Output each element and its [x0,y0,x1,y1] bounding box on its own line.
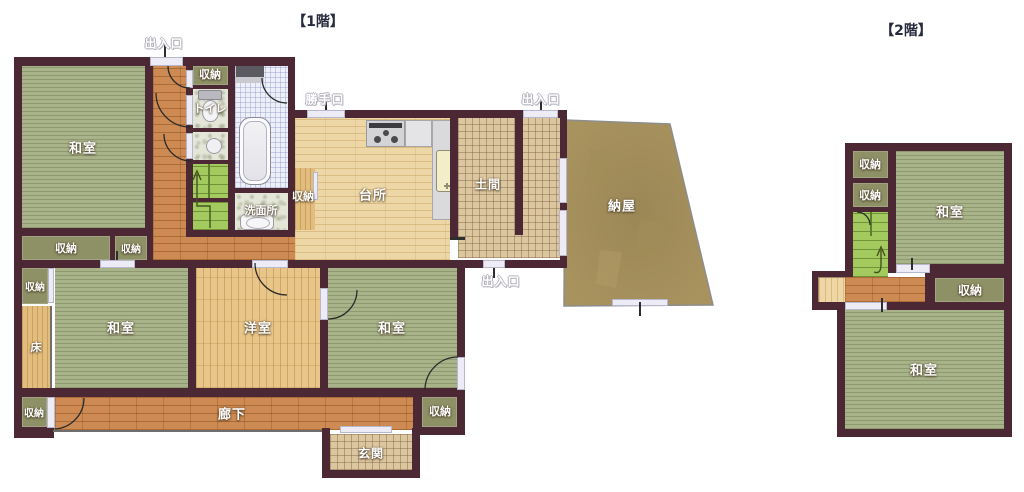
label-closet-west: 収納 [25,279,45,294]
label-kitchen: 台所 [359,185,387,204]
label-closet-southwest: 収納 [24,405,44,420]
entrance-door-top [150,57,183,66]
floorplan-canvas: 【1階】 【2階】 [0,0,1024,492]
stairs-divider-2f [870,212,872,236]
label-katteguchi: 勝手口 [305,91,344,108]
toilet-door [186,95,193,125]
genkan-door [340,426,392,433]
washitsu-south-west-door [320,288,328,320]
label-closet-wide: 収納 [55,240,77,256]
doma-door-top [523,110,558,118]
washbasin-door [186,133,193,159]
label-toilet: トイレ [194,100,227,116]
kitchen-sink-icon [405,120,432,147]
bathtub-icon [239,117,271,185]
label-closet-kitchen: 収納 [292,188,314,204]
toilet-tank-icon [198,90,222,100]
doma-door-bottom [483,260,505,268]
hallway-vertical [153,66,186,237]
label-deiriguchi-doma-bottom: 出入口 [481,273,520,290]
kitchen-backdoor [307,110,345,118]
label-corridor: 廊下 [218,404,246,423]
youshitsu-door [252,260,288,268]
label-washitsu-2f-north: 和室 [936,202,964,221]
hall-closet-door [186,70,193,88]
label-closet-top: 収納 [199,66,221,82]
washitsu-middle-door [100,260,135,268]
label-deiriguchi-doma-top: 出入口 [521,91,560,108]
bath-vanity-icon [236,66,264,77]
second-floor-title: 【2階】 [880,20,932,40]
label-washitsu-2f-south: 和室 [910,360,938,379]
closet-2f-tan [818,277,847,304]
washbasin-round-icon [206,138,222,154]
label-closet-2f-a: 収納 [859,156,881,172]
hallway-horizontal [153,237,295,260]
bath-vanity-shelf-icon [236,77,264,83]
label-genkan: 玄関 [358,445,384,462]
label-barn: 納屋 [608,196,636,215]
label-closet-2f-b: 収納 [859,187,881,203]
room-doma [458,118,560,258]
corridor-west-door [47,397,55,428]
label-tokonoma: 床 [31,339,42,355]
corridor-2f [845,277,925,302]
label-deiriguchi-top: 出入口 [144,35,183,52]
barn-opening-lower [559,210,567,256]
stairs-divider-1f [208,164,210,198]
washitsu-2f-north-door [896,264,930,273]
label-washitsu-nw: 和室 [69,138,97,157]
closet-west-door [48,268,54,303]
label-washitsu-middle: 和室 [107,318,135,337]
barn-opening-upper [559,158,567,203]
stove-icon [366,120,405,147]
label-closet-narrow: 収納 [121,241,141,256]
label-closet-southeast: 収納 [429,403,451,419]
label-senmenjo: 洗面所 [245,202,278,218]
label-youshitsu: 洋室 [244,318,272,337]
label-doma: 土間 [475,176,501,193]
washitsu-south-east-door [457,357,465,390]
label-washitsu-south: 和室 [378,318,406,337]
first-floor-title: 【1階】 [292,11,344,31]
stairs-midwall-1f [188,198,230,202]
label-closet-2f-c: 収納 [958,282,982,299]
